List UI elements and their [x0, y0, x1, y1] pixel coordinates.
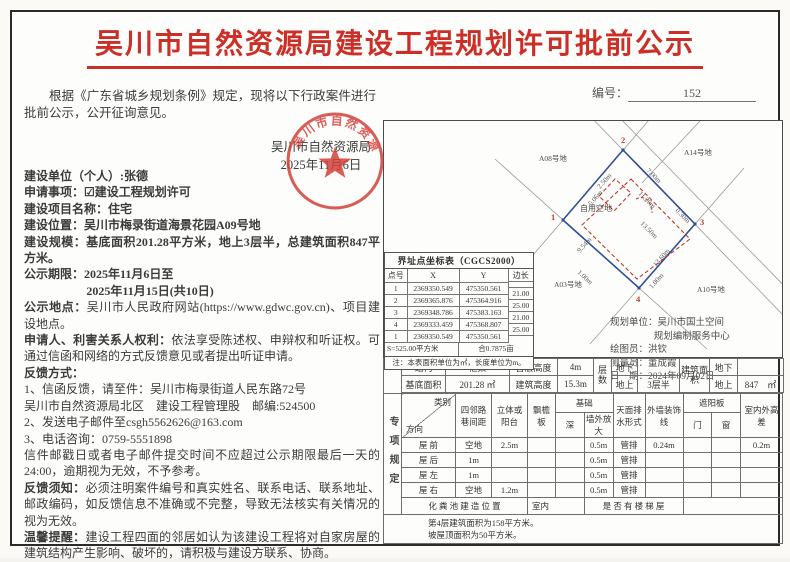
- corner-label-1: 1: [551, 212, 555, 222]
- corner-category: 类别: [434, 396, 451, 408]
- expand-value: 0.5m: [584, 438, 613, 453]
- coordinate-main-table: 点号 X Y 12369350.549475350.561 22369365.8…: [385, 269, 509, 343]
- neighbor-distance-header: 四邻路巷间距: [456, 394, 492, 438]
- col-header-y: Y: [459, 269, 508, 282]
- credit-org: 规划单位：吴川市国土空间: [610, 317, 780, 331]
- floors-above-value: 3层半: [638, 376, 680, 393]
- credit-org-line1: 吴川市国土空间: [658, 318, 725, 328]
- parcel-a08-label: A08号地: [539, 153, 567, 163]
- stair-label: 是 否 有 楼 梯 屋: [584, 498, 683, 515]
- neighbor-value: 空地: [456, 483, 492, 498]
- area-above-label: 地上: [710, 376, 738, 393]
- field-scale-label: 建设规模：: [24, 235, 86, 249]
- point-y: 475350.561: [459, 282, 508, 294]
- dim-13-60m: 13.60m: [652, 247, 672, 269]
- corner-direction: 方向: [406, 423, 423, 435]
- coord-row: 12369350.549475350.561: [385, 330, 508, 342]
- page-title: 吴川市自然资源局建设工程规划许可批前公示: [87, 22, 703, 69]
- area-below-label: 地下: [710, 359, 738, 376]
- first-floor-height-value: 4m: [558, 359, 594, 376]
- feedback-mail-line2: 吴川市自然资源局北区 建设工程管理股 邮编:524500: [24, 398, 380, 414]
- field-matter-label: 申请事项：: [24, 185, 84, 199]
- floor-area-label: 建筑面积: [680, 359, 710, 393]
- parcel-a10-label: A10号地: [697, 284, 725, 294]
- window-value: [712, 483, 741, 498]
- parcel-a14-label: A14号地: [684, 147, 712, 157]
- rule-row-left: 屋 左 1m 0.5m 管排: [384, 468, 783, 483]
- boundary-point-4: [637, 286, 640, 289]
- floors-label: 层数: [594, 359, 612, 393]
- coordinate-table: 界址点坐标表（CGCS2000） 点号 X Y 12369350.5494753…: [384, 252, 534, 370]
- point-no: 3: [385, 306, 407, 318]
- dim-11-20m: 11.20m: [637, 190, 658, 211]
- field-unit-label: 建设单位（个人）:: [24, 169, 124, 183]
- field-location: 建设位置：吴川市梅录街道海景花园A09号地: [24, 217, 380, 233]
- feedback-mail-line1: 1、信函反馈，请至件：吴川市梅录街道人民东路72号: [24, 381, 380, 397]
- feedback-phone: 3、电话咨询：0759-5551898: [24, 431, 380, 447]
- field-unit-value: 张德: [124, 169, 148, 183]
- dir-label: 屋 左: [402, 468, 456, 483]
- dim-2-50m: 2.50m: [596, 171, 614, 190]
- edge-length: 25.00: [509, 300, 534, 312]
- rule-row-right: 屋 右 空地 1.2m 0.5m 管排: [384, 483, 783, 498]
- corner-header: 类别 方向: [402, 394, 456, 438]
- drain-header: 天面排水形式: [613, 394, 645, 438]
- special-rules-table: 专项规定 类别 方向 四邻路巷间距 立体或阳台 飘檐板 基础 天面排水形式 外墙…: [383, 393, 783, 544]
- coord-row: 32369348.786475383.163: [385, 306, 508, 318]
- point-x: 2369365.876: [407, 294, 459, 306]
- door-value: [683, 468, 712, 483]
- scanned-notice-page: 吴川市自然资源局建设工程规划许可批前公示 编号：152 根据《广东省城乡规划条例…: [0, 0, 790, 558]
- window-value: [712, 468, 741, 483]
- floors-above-label: 地上: [612, 376, 638, 393]
- window-header: 窗: [712, 413, 741, 438]
- door-value: [683, 438, 712, 453]
- base-area-label: 基底面积: [402, 376, 446, 393]
- neighbor-value: 1m: [456, 468, 492, 483]
- document-number-label: 编号：: [592, 86, 628, 100]
- trim-value: [645, 453, 683, 468]
- credit-drafter-value: 洪钦: [648, 345, 667, 355]
- foundation-header: 基础: [556, 394, 614, 413]
- field-notice: 反馈须知：必须注明案件编号和真实姓名、联系电话、联系地址、邮政编码，如反馈信息不…: [24, 480, 380, 529]
- expand-value: 0.5m: [584, 468, 613, 483]
- notice-fields: 建设单位（个人）:张德 申请事项：☑建设工程规划许可 建设项目名称：住宅 建设位…: [24, 168, 380, 562]
- depth-value: [556, 453, 585, 468]
- point-x: 2369348.786: [407, 306, 459, 318]
- trim-value: [645, 468, 683, 483]
- corner-label-2: 2: [621, 135, 625, 145]
- septic-value: 室内: [528, 498, 585, 515]
- credit-org-label: 规划单位：: [610, 318, 658, 328]
- window-value: [712, 438, 741, 453]
- seal-star-icon: [318, 147, 351, 178]
- col-header-x: X: [407, 269, 459, 282]
- coord-row: 42369333.459475368.807: [385, 318, 508, 330]
- field-period-line2: 2025年11月15日(共10日): [24, 283, 380, 299]
- spec-notes: 第4层建筑面积为158平方米。 坡屋顶面积为50平方米。: [384, 515, 783, 544]
- field-period: 公示期限：2025年11月6日至: [24, 266, 380, 282]
- spec-note-1: 第4层建筑面积为158平方米。: [428, 517, 782, 529]
- field-place-label: 公示地点：: [24, 300, 87, 314]
- height-diff-header: 室内外高差: [741, 394, 783, 438]
- point-x: 2369350.549: [407, 282, 459, 294]
- balcony-value: [492, 453, 528, 468]
- coordinate-table-body: 点号 X Y 12369350.549475350.561 22369365.8…: [385, 269, 533, 343]
- credit-drafter: 绘图员：洪钦: [610, 344, 780, 358]
- corner-label-4: 4: [636, 294, 641, 304]
- boundary-point-3: [693, 222, 696, 225]
- drain-value: 管排: [613, 483, 645, 498]
- dim-0-30m: 0.30m: [674, 207, 693, 226]
- rule-row-front: 屋 前 空地 2.5m 0.5m 管排 0.24m 0.2m: [384, 438, 783, 453]
- coordinate-note: 注：本表面积单位为㎡，长度单位为m。: [385, 356, 533, 369]
- point-y: 475350.561: [459, 330, 508, 342]
- spec-note-2: 坡屋顶面积为50平方米。: [428, 529, 782, 541]
- eave-header: 飘檐板: [528, 394, 556, 438]
- field-project-value: 住宅: [108, 202, 132, 216]
- drain-value: 管排: [613, 468, 645, 483]
- field-rights-label: 申请人、利害关系人权利：: [24, 333, 171, 347]
- drain-value: 管排: [613, 453, 645, 468]
- point-no: 2: [385, 294, 407, 306]
- edge-length: 21.00: [509, 288, 534, 300]
- eave-value: [528, 483, 556, 498]
- balcony-value: 2.5m: [492, 438, 528, 453]
- field-tip: 温馨提醒：建设工程四面的邻居如认为该建设工程将对自家房屋的建筑结构产生影响、破坏…: [24, 529, 380, 562]
- building-height-value: 15.3m: [558, 376, 594, 393]
- edge-length-column: 边长 21.00 25.00 21.00 25.00: [509, 269, 534, 343]
- field-period-line1: 2025年11月6日至: [84, 267, 173, 281]
- deadline-note: 信件邮戳日或者电子邮件提交时间不应超过公示期限最后一天的24:00，逾期视为无效…: [24, 447, 380, 480]
- field-location-label: 建设位置：: [24, 218, 84, 232]
- coordinate-table-title: 界址点坐标表（CGCS2000）: [385, 253, 533, 269]
- trim-header: 外墙装饰线: [645, 394, 683, 438]
- feedback-email: 2、发送电子邮件至csgh5562626@163.com: [24, 414, 380, 430]
- special-rules-side-label: 专项规定: [384, 394, 402, 515]
- area-below-value: [738, 359, 784, 376]
- parcel-labels: 自用空地 A08号地 A14号地 A03号地 A10号地: [539, 147, 725, 294]
- area-above-value: 847 ㎡: [738, 376, 784, 393]
- field-project-label: 建设项目名称：: [24, 202, 108, 216]
- neighbor-value: 空地: [456, 438, 492, 453]
- edge-length: 21.00: [509, 312, 534, 324]
- document-number: 编号：152: [592, 84, 756, 102]
- field-scale: 建设规模：基底面积201.28平方米，地上3层半，总建筑面积847平方米。: [24, 234, 380, 267]
- document-number-value: 152: [628, 86, 756, 102]
- septic-label: 化 粪 池 建 造 位 置: [402, 498, 528, 515]
- dir-label: 屋 后: [402, 453, 456, 468]
- diff-value: [741, 453, 783, 468]
- eave-value: [528, 438, 556, 453]
- col-header-point: 点号: [385, 269, 407, 282]
- dir-label: 屋 前: [402, 438, 456, 453]
- point-y: 475383.163: [459, 306, 508, 318]
- drain-value: 管排: [613, 438, 645, 453]
- point-no: 4: [385, 318, 407, 330]
- area-mu: 合0.7875亩: [459, 343, 533, 356]
- point-no: 1: [385, 330, 407, 342]
- credit-org-line2: 规划编制服务中心: [610, 331, 780, 345]
- diff-value: 0.2m: [741, 438, 783, 453]
- depth-value: [556, 483, 585, 498]
- trim-value: [645, 483, 683, 498]
- dim-13-50m: 13.50m: [639, 220, 660, 241]
- field-period-label: 公示期限：: [24, 267, 84, 281]
- septic-row: 化 粪 池 建 造 位 置 室内 是 否 有 楼 梯 屋: [384, 498, 783, 515]
- diff-value: [741, 483, 783, 498]
- field-matter-value: ☑建设工程规划许可: [84, 185, 191, 199]
- field-tip-label: 温馨提醒：: [24, 530, 85, 544]
- coord-row: 12369350.549475350.561: [385, 282, 508, 294]
- open-space-label: 自用空地: [580, 203, 612, 213]
- corner-label-3: 3: [700, 217, 704, 227]
- field-place: 公示地点：吴川市人民政府网站(https://www.gdwc.gov.cn)、…: [24, 299, 380, 332]
- balcony-value: [492, 468, 528, 483]
- official-seal: 吴川市自然资源局: [284, 110, 386, 212]
- boundary-point-2: [621, 148, 624, 151]
- coord-row: 22369365.876475364.916: [385, 294, 508, 306]
- window-value: [712, 453, 741, 468]
- expand-header: 墙外放大: [584, 413, 613, 438]
- door-value: [683, 453, 712, 468]
- coordinate-header-row: 点号 X Y: [385, 269, 508, 282]
- spec-section: 结构 框架 首层高度 4m 层数 地下 建筑面积 地下 基底面积 201.28 …: [383, 358, 783, 544]
- stair-value: [683, 498, 783, 515]
- balcony-value: 1.2m: [492, 483, 528, 498]
- field-location-value: 吴川市梅录街道海景花园A09号地: [84, 218, 261, 232]
- eave-value: [528, 453, 556, 468]
- balcony-header: 立体或阳台: [492, 394, 528, 438]
- point-y: 475368.807: [459, 318, 508, 330]
- field-notice-label: 反馈须知：: [24, 481, 85, 495]
- depth-value: [556, 438, 585, 453]
- rule-row-back: 屋 后 1m 0.5m 管排: [384, 453, 783, 468]
- expand-value: 0.5m: [584, 453, 613, 468]
- base-area-value: 201.28 ㎡: [446, 376, 510, 393]
- rules-header-row-1: 专项规定 类别 方向 四邻路巷间距 立体或阳台 飘檐板 基础 天面排水形式 外墙…: [384, 394, 783, 413]
- area-total: S=525.00平方米: [385, 343, 459, 356]
- coordinate-footer: S=525.00平方米 合0.7875亩: [385, 343, 533, 356]
- point-no: 1: [385, 282, 407, 294]
- field-feedback-label: 反馈方式：: [24, 365, 380, 381]
- boundary-point-1: [561, 218, 564, 221]
- parcel-a03-label: A03号地: [554, 279, 582, 289]
- floors-below-value: [638, 359, 680, 376]
- sunshade-header: 遮阳板: [683, 394, 741, 413]
- neighbor-value: 1m: [456, 453, 492, 468]
- eave-value: [528, 468, 556, 483]
- door-value: [683, 483, 712, 498]
- summary-row-2: 基底面积 201.28 ㎡ 建筑高度 15.3m 地上 3层半 地上 847 ㎡: [384, 376, 784, 393]
- depth-header: 深: [556, 413, 585, 438]
- diff-value: [741, 468, 783, 483]
- depth-value: [556, 468, 585, 483]
- field-rights: 申请人、利害关系人权利：依法享受陈述权、申辩权和听证权。可通过信函和网络的方式反…: [24, 332, 380, 365]
- parcel-boundary: [563, 150, 695, 288]
- point-x: 2369350.549: [407, 330, 459, 342]
- point-y: 475364.916: [459, 294, 508, 306]
- building-height-label: 建筑高度: [510, 376, 558, 393]
- trim-value: 0.24m: [645, 438, 683, 453]
- point-x: 2369333.459: [407, 318, 459, 330]
- expand-value: 0.5m: [584, 483, 613, 498]
- dir-label: 屋 右: [402, 483, 456, 498]
- col-header-edge: 边长: [509, 269, 534, 282]
- title-area: 吴川市自然资源局建设工程规划许可批前公示: [0, 22, 790, 69]
- edge-length: 25.00: [509, 324, 534, 336]
- door-header: 门: [683, 413, 712, 438]
- credit-drafter-label: 绘图员：: [610, 345, 648, 355]
- notes-row: 第4层建筑面积为158平方米。 坡屋顶面积为50平方米。: [384, 515, 783, 544]
- floors-below-label: 地下: [612, 359, 638, 376]
